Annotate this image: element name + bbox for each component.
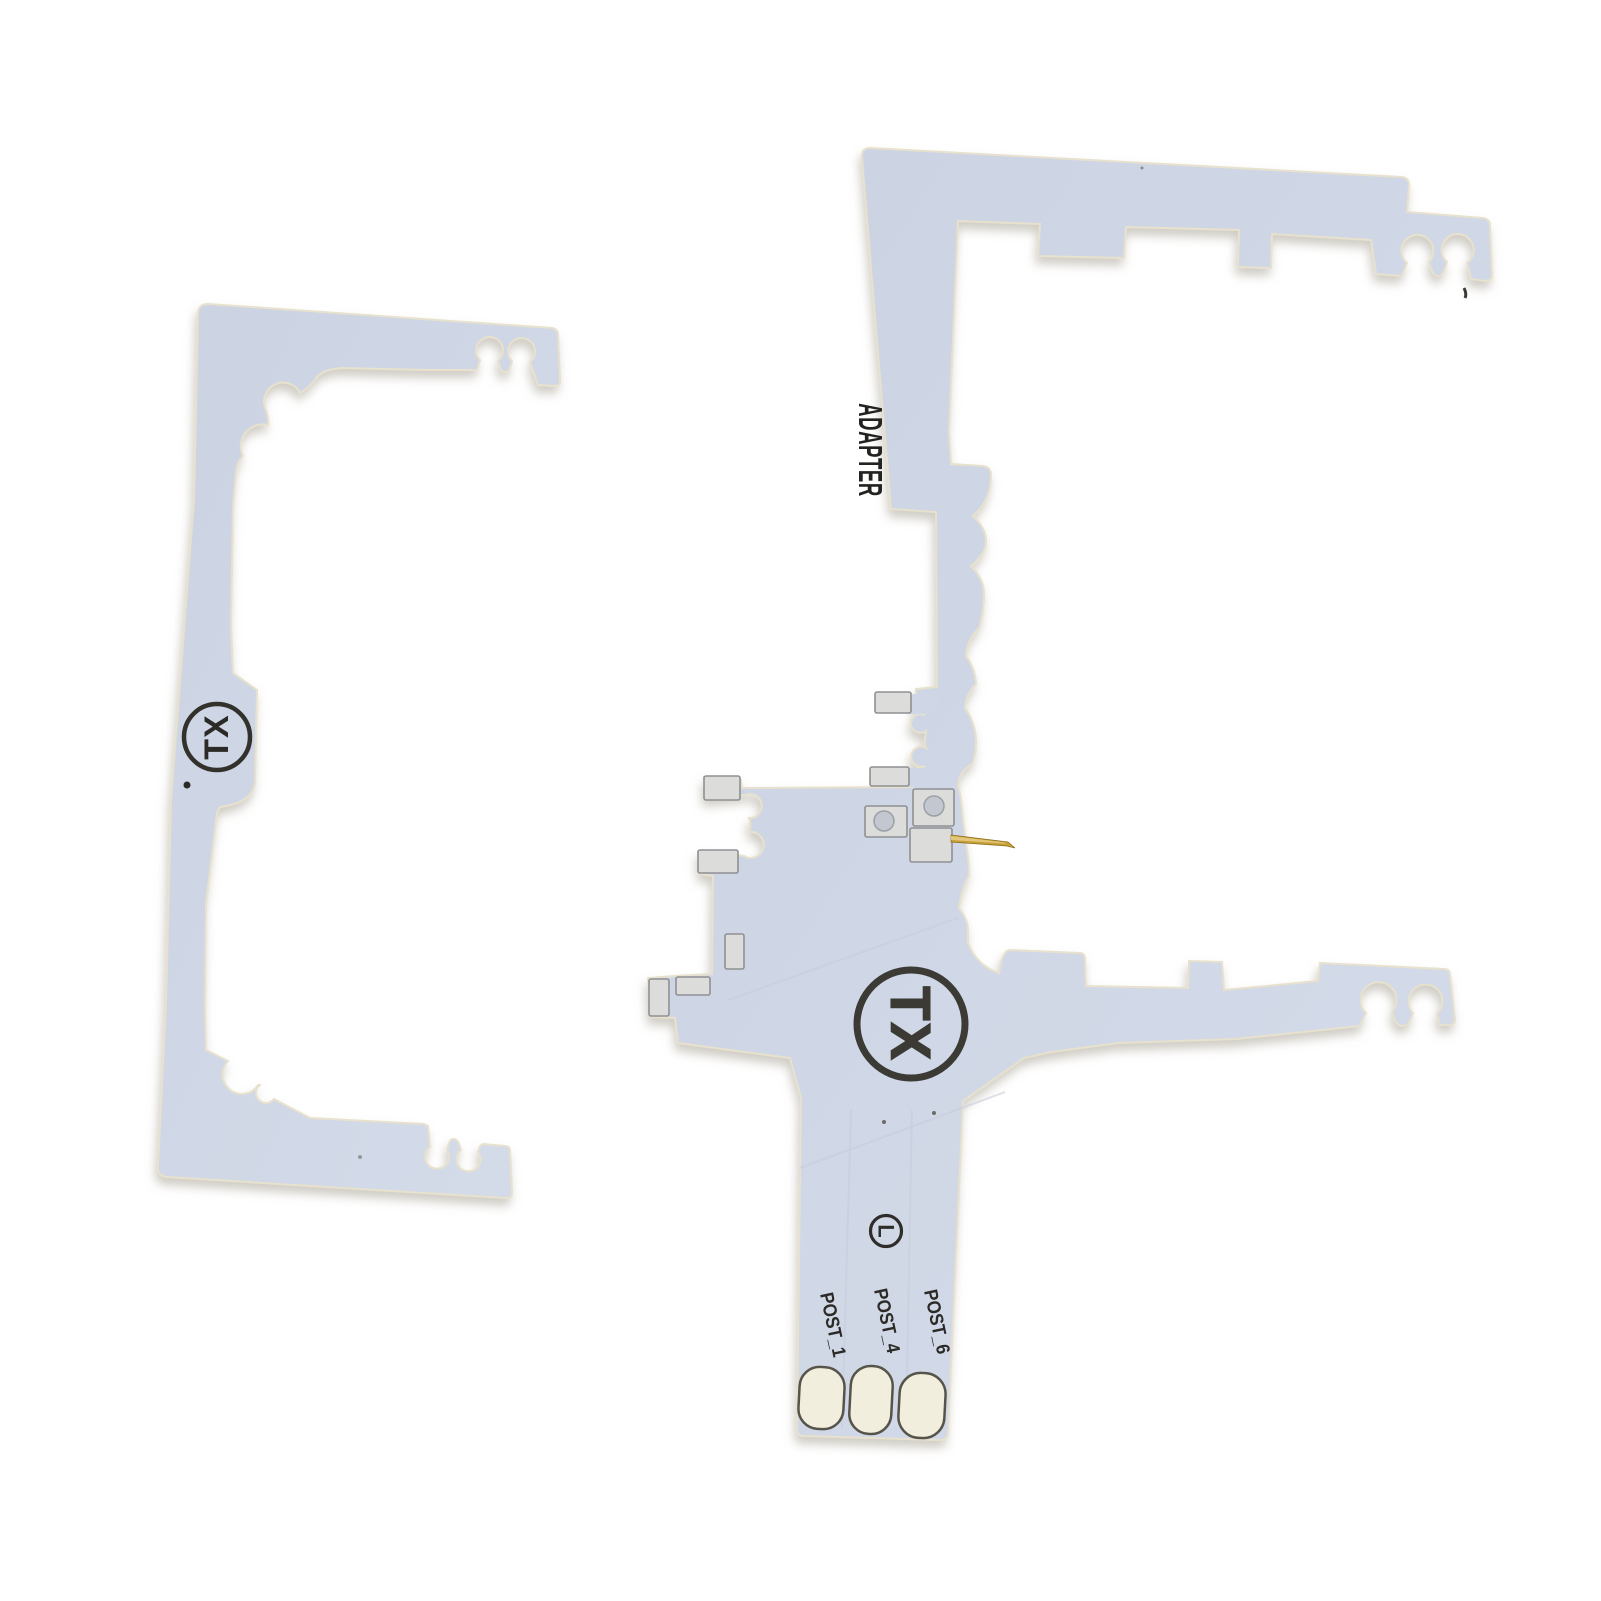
svg-text:TX: TX	[198, 714, 236, 759]
svg-text:ADAPTER: ADAPTER	[852, 403, 890, 497]
svg-text:TX: TX	[880, 986, 943, 1062]
svg-text:L: L	[874, 1224, 899, 1237]
